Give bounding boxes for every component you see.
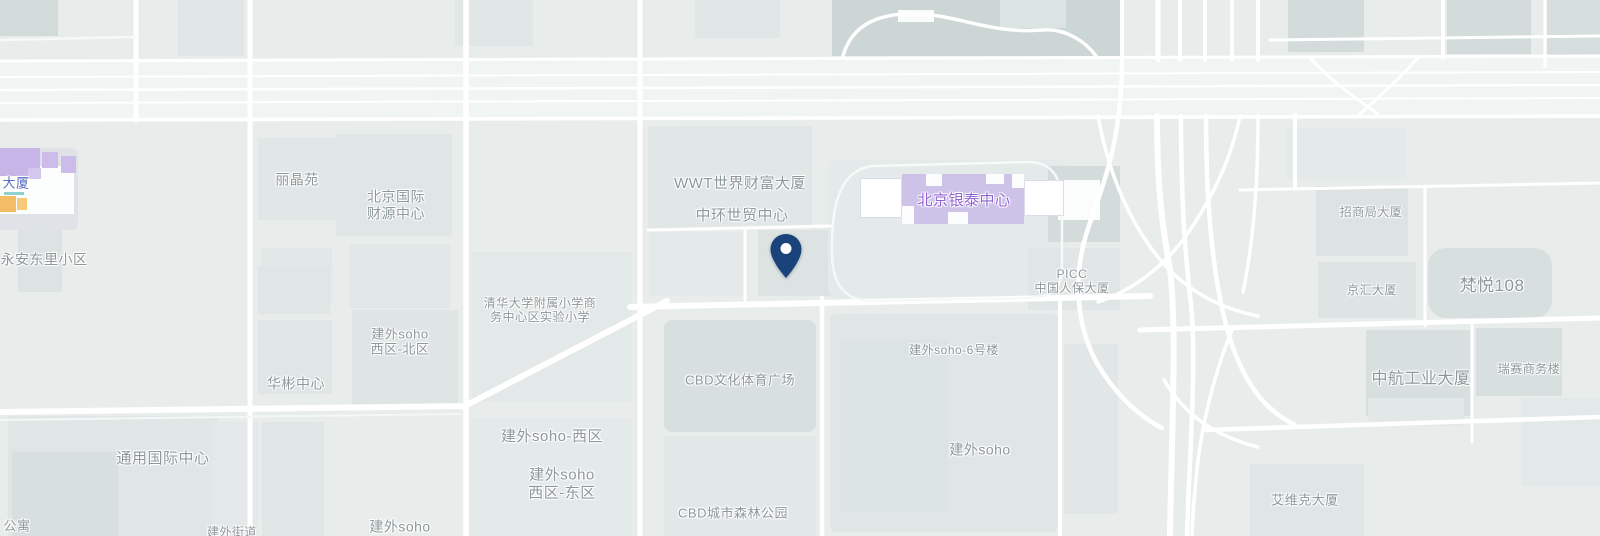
map-label: 建外soho西区-北区 [371, 327, 430, 358]
map-label: 丽晶苑 [275, 172, 319, 189]
map-label: 建外街道 [207, 525, 257, 536]
map-label: CBD文化体育广场 [685, 372, 795, 387]
map-label: WWT世界财富大厦 [674, 175, 806, 193]
map-canvas[interactable]: 永安东里小区丽晶苑北京国际财源中心WWT世界财富大厦中环世贸中心北京银泰中心PI… [0, 0, 1600, 536]
map-label: 华彬中心 [267, 376, 325, 393]
map-label: 清华大学附属小学商务中心区实验小学 [484, 296, 597, 324]
map-label: 京汇大厦 [1347, 283, 1397, 297]
map-label: 公寓 [3, 518, 30, 533]
map-label: 建外soho西区-东区 [528, 466, 596, 501]
map-label: 建外soho-6号楼 [909, 343, 999, 357]
map-label: 通用国际中心 [116, 450, 209, 468]
map-label: PICC中国人保大厦 [1034, 267, 1109, 295]
map-label: 招商局大厦 [1340, 205, 1403, 219]
map-label: CBD城市森林公园 [678, 505, 788, 520]
map-label: 艾维克大厦 [1271, 492, 1339, 507]
map-label: 瑞赛商务楼 [1498, 362, 1561, 376]
map-label: 永安东里小区 [1, 252, 88, 269]
map-label: 建外soho [369, 519, 430, 536]
map-label: 建外soho [949, 442, 1010, 459]
map-label: 大厦 [2, 175, 29, 190]
map-label: 梵悦108 [1460, 276, 1525, 296]
map-label: 中环世贸中心 [695, 207, 788, 225]
labels-layer: 永安东里小区丽晶苑北京国际财源中心WWT世界财富大厦中环世贸中心北京银泰中心PI… [0, 0, 1600, 536]
map-label: 中航工业大厦 [1371, 371, 1470, 390]
map-label: 北京国际财源中心 [367, 188, 425, 221]
map-label: 北京银泰中心 [917, 192, 1010, 210]
map-label: 建外soho-西区 [501, 428, 603, 446]
